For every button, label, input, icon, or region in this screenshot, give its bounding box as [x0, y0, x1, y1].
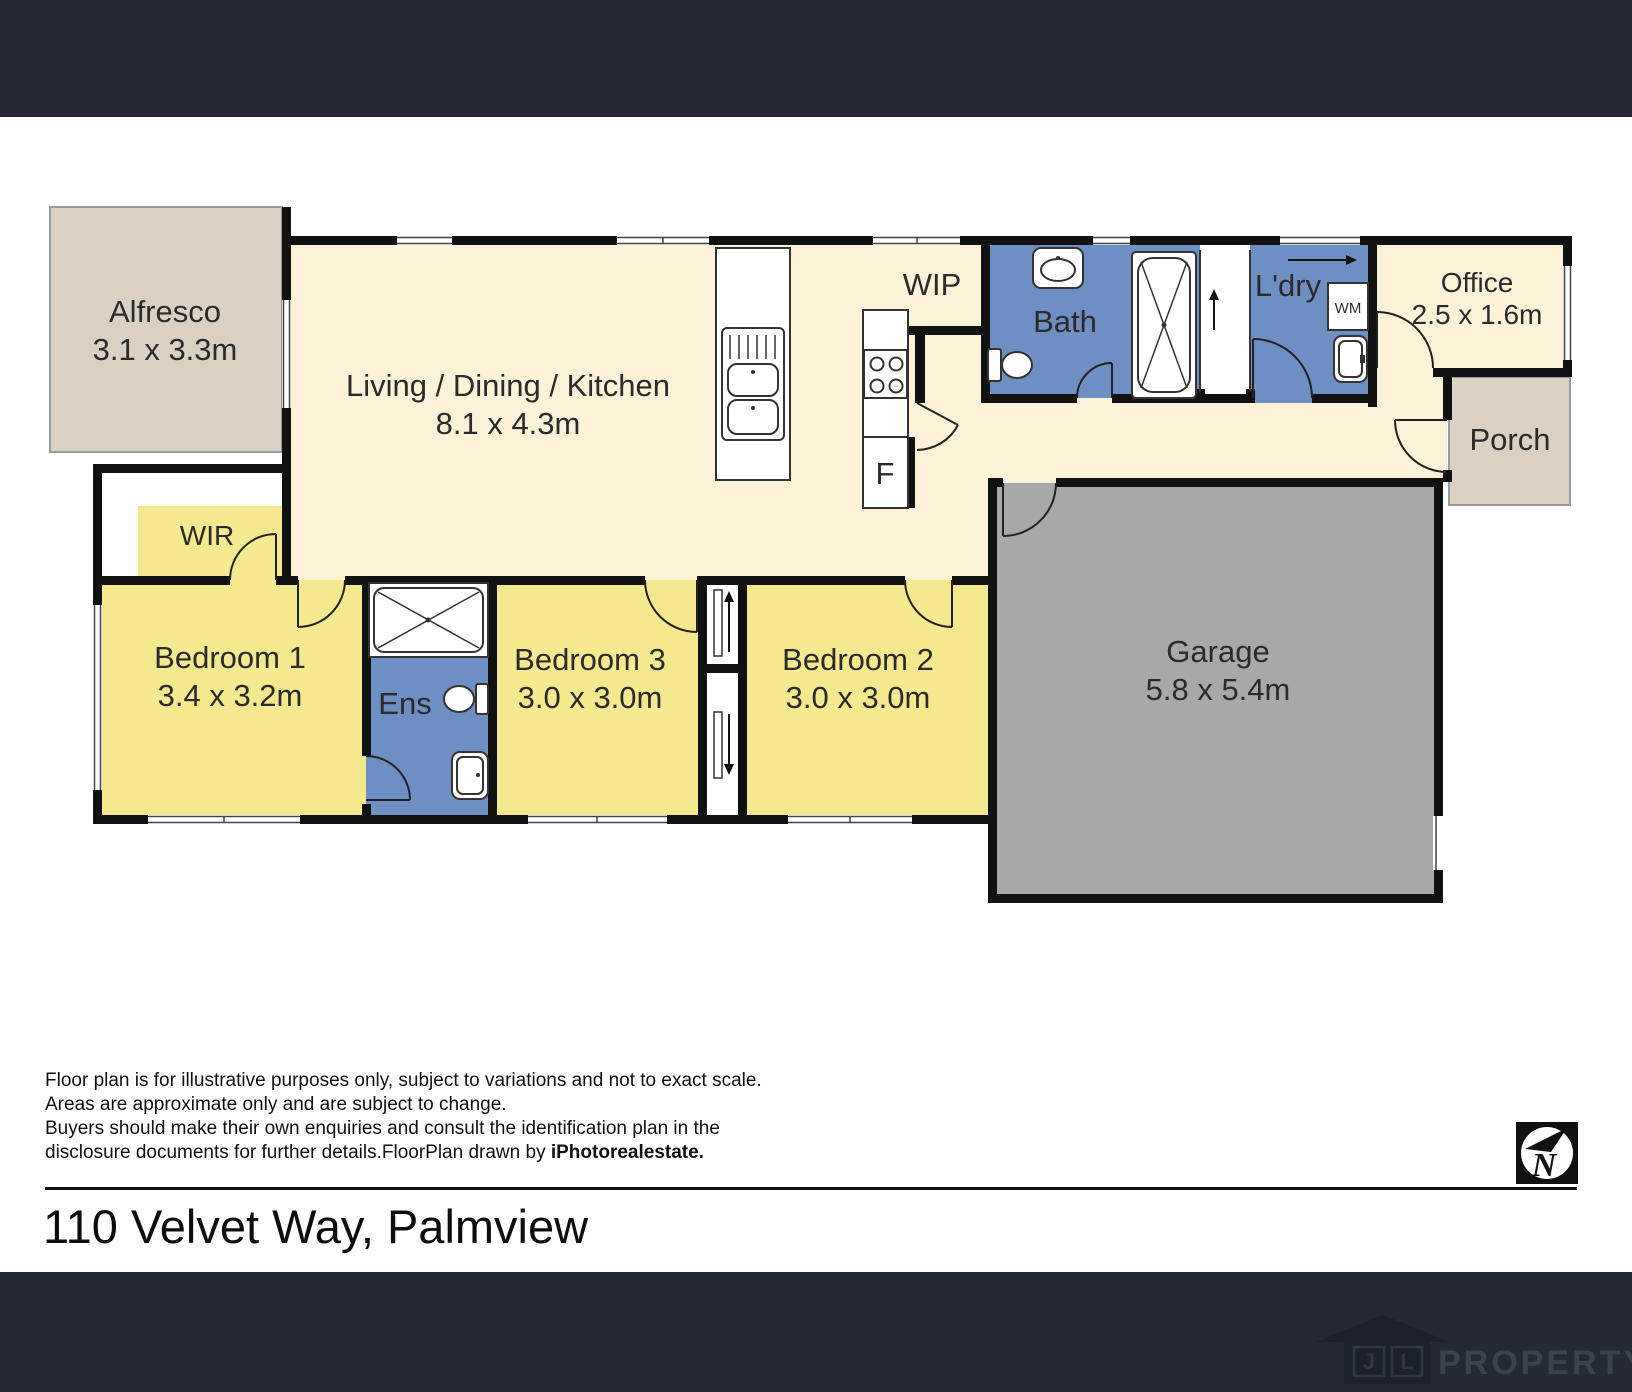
- window-top-2: [617, 236, 709, 245]
- window-bed1-bottom: [148, 815, 300, 824]
- drawn-by-credit: iPhotorealestate.: [551, 1142, 704, 1163]
- property-address: 110 Velvet Way, Palmview: [43, 1199, 588, 1254]
- label-bed2-name: Bedroom 2: [782, 642, 934, 677]
- label-office-name: Office: [1441, 267, 1514, 298]
- disclaimer-line-3: Buyers should make their own enquiries a…: [45, 1117, 1005, 1141]
- label-ens: Ens: [378, 686, 431, 721]
- floorplan-drawing: Alfresco 3.1 x 3.3m Living / Dining / Ki…: [0, 0, 1632, 1392]
- label-garage-dims: 5.8 x 5.4m: [1146, 672, 1291, 707]
- label-bed2-dims: 3.0 x 3.0m: [786, 680, 931, 715]
- kitchen-island: [716, 248, 790, 480]
- label-wip: WIP: [903, 267, 962, 302]
- label-alfresco-dims: 3.1 x 3.3m: [93, 332, 238, 367]
- ens-sink-icon: [452, 752, 488, 799]
- label-wm: WM: [1335, 300, 1362, 317]
- closet-strip-floor: [703, 580, 743, 820]
- label-wir: WIR: [180, 520, 234, 551]
- logo-letter-l: L: [1400, 1349, 1413, 1374]
- label-porch: Porch: [1470, 422, 1551, 457]
- disclaimer-text: Floor plan is for illustrative purposes …: [45, 1069, 1005, 1165]
- bath-toilet-icon: [988, 349, 1032, 381]
- label-living-name: Living / Dining / Kitchen: [346, 368, 670, 403]
- disclaimer-line-1: Floor plan is for illustrative purposes …: [45, 1069, 1005, 1093]
- logo-house-roof-icon: [1316, 1315, 1450, 1342]
- separator-rule: [45, 1187, 1577, 1190]
- window-office-right: [1563, 266, 1572, 360]
- ens-toilet-icon: [444, 684, 488, 714]
- floorplan-page: Alfresco 3.1 x 3.3m Living / Dining / Ki…: [0, 0, 1632, 1392]
- label-bed1-dims: 3.4 x 3.2m: [158, 678, 303, 713]
- label-office-dims: 2.5 x 1.6m: [1412, 299, 1543, 330]
- logo-letter-j: J: [1363, 1349, 1375, 1374]
- label-ldry: L'dry: [1255, 268, 1322, 303]
- label-alfresco-name: Alfresco: [109, 294, 221, 329]
- compass-letter: N: [1531, 1147, 1558, 1184]
- window-bed3-bottom: [528, 815, 667, 824]
- footer-logo: J L PROPERTY: [1316, 1315, 1632, 1384]
- label-bed3-name: Bedroom 3: [514, 642, 666, 677]
- window-bed1-left: [93, 605, 102, 790]
- laundry-tub-icon: [1334, 336, 1367, 382]
- entry-floor: [1372, 368, 1447, 483]
- window-ldry-sliding: [1280, 236, 1360, 245]
- label-living-dims: 8.1 x 4.3m: [436, 406, 581, 441]
- bath-sink-icon: [1033, 248, 1083, 288]
- ens-shower-icon: [369, 583, 488, 657]
- label-garage-name: Garage: [1166, 634, 1269, 669]
- garage-door-opening: [1433, 816, 1444, 870]
- label-bed1-name: Bedroom 1: [154, 640, 306, 675]
- bathtub-icon: [1132, 252, 1196, 398]
- window-top-1: [397, 236, 452, 245]
- linen-cupboard-floor: [1200, 243, 1250, 394]
- window-bath: [1093, 236, 1130, 245]
- disclaimer-line-2: Areas are approximate only and are subje…: [45, 1093, 1005, 1117]
- window-top-3: [873, 236, 960, 245]
- logo-brand-name: PROPERTY: [1438, 1344, 1632, 1382]
- label-bath: Bath: [1033, 304, 1097, 339]
- window-bed2-bottom: [788, 815, 912, 824]
- label-fridge: F: [876, 456, 895, 491]
- disclaimer-line-4: disclosure documents for further details…: [45, 1141, 1005, 1165]
- sliding-door-alfresco: [282, 300, 291, 408]
- north-compass-icon: N: [1516, 1122, 1578, 1184]
- room-alfresco-floor: [50, 207, 282, 452]
- hall-corridor-floor: [915, 398, 1447, 483]
- label-bed3-dims: 3.0 x 3.0m: [518, 680, 663, 715]
